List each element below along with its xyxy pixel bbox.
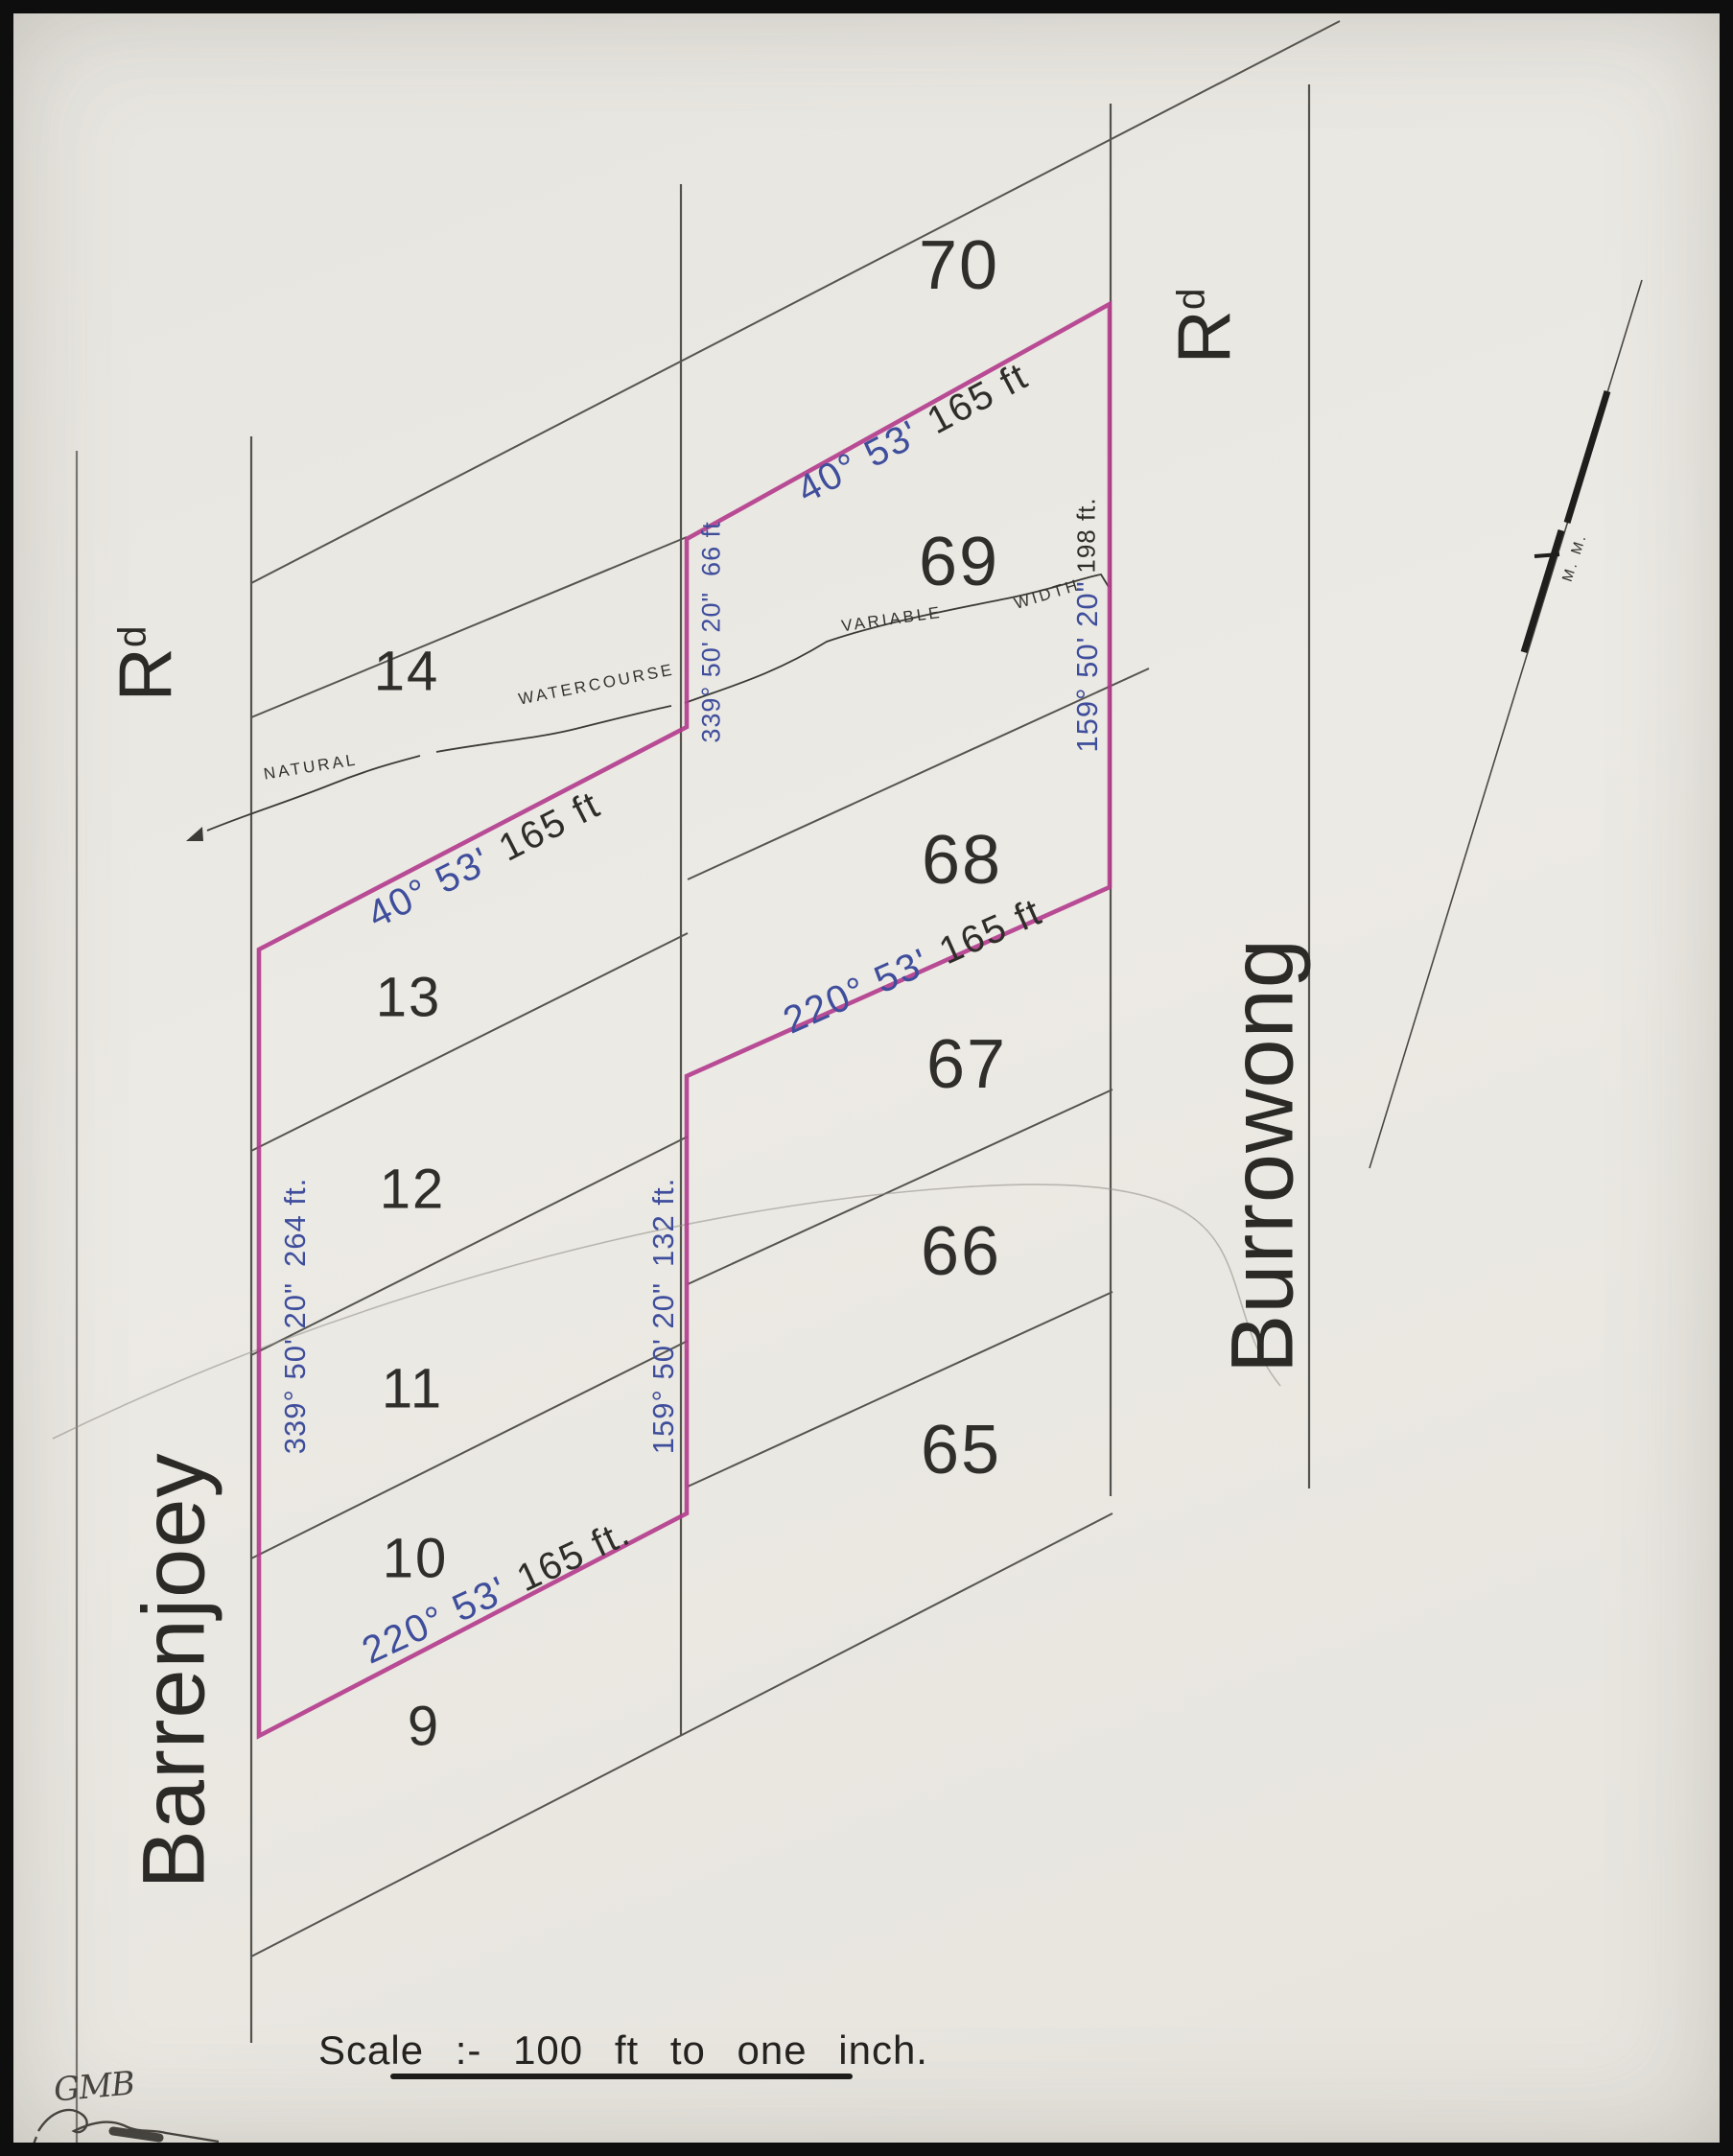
scale-underline	[390, 2074, 853, 2079]
bearing-value: 159° 50' 20"	[646, 1282, 681, 1454]
bearing-notch: 339° 50' 20" 66 ft	[697, 521, 727, 742]
lot-label-69: 69	[919, 523, 999, 601]
watercourse-arrowhead-icon	[186, 827, 203, 841]
road-abbr-burrowong: Rd	[1161, 289, 1249, 364]
road-name-barrenjoey: Barrenjoey	[125, 1453, 225, 1889]
bearing-value: 339° 50' 20"	[278, 1282, 313, 1454]
road-abbr-sup: d	[110, 626, 154, 648]
distance-value: 66 ft	[697, 521, 727, 576]
lot-label-67: 67	[926, 1025, 1007, 1104]
lot-label-65: 65	[921, 1411, 1001, 1489]
meridian-bar-lower	[1524, 530, 1561, 652]
lot-label-12: 12	[380, 1158, 446, 1222]
bearing-value: 159° 50' 20"	[1070, 580, 1105, 752]
lot-label-13: 13	[376, 966, 442, 1030]
scale-note: Scale :- 100 ft to one inch.	[318, 2027, 928, 2074]
division-line-65-66	[688, 1292, 1112, 1487]
north-arrow	[1370, 280, 1642, 1168]
bearing-left-frontage: 339° 50' 20" 264 ft.	[278, 1178, 313, 1454]
lot-label-10: 10	[383, 1527, 449, 1591]
bearing-right-frontage: 159° 50' 20"	[1070, 580, 1105, 752]
meridian-tick	[1534, 554, 1559, 556]
watercourse-width-value: 198 ft.	[1072, 497, 1102, 573]
distance-value: 264 ft.	[278, 1178, 313, 1267]
signature-scribble	[33, 2110, 219, 2152]
lot-label-70: 70	[919, 226, 999, 305]
roads-linework	[77, 84, 1309, 2144]
surveyor-initials: GMB	[52, 2064, 135, 2109]
bearing-value: 339° 50' 20"	[697, 592, 727, 743]
bearing-mid-rear: 159° 50' 20" 132 ft.	[646, 1178, 681, 1454]
lot-label-11: 11	[382, 1357, 443, 1421]
road-abbr-main: R	[1162, 310, 1247, 363]
road-abbr-main: R	[104, 647, 188, 701]
division-line-14-top	[251, 537, 687, 717]
distance-value: 132 ft.	[646, 1178, 681, 1267]
lot-label-9: 9	[408, 1695, 440, 1759]
watercourse-line	[186, 574, 1109, 841]
survey-plan-page: Barrenjoey Rd Burrowong Rd 14 13 12 11 1…	[0, 0, 1733, 2156]
lot-label-14: 14	[374, 640, 440, 704]
watercourse-segment-2	[436, 706, 671, 752]
plan-linework	[0, 0, 1733, 2156]
division-line-66-67	[688, 1090, 1112, 1284]
signature-flick	[33, 2137, 36, 2152]
lot-label-66: 66	[921, 1212, 1001, 1291]
division-line-11-12	[251, 1137, 688, 1355]
road-abbr-sup: d	[1169, 289, 1213, 311]
lot-label-68: 68	[922, 821, 1002, 900]
road-name-burrowong: Burrowong	[1213, 938, 1314, 1373]
road-abbr-barrenjoey: Rd	[103, 626, 190, 702]
meridian-bar-upper	[1567, 391, 1607, 523]
division-line-12-13	[251, 933, 688, 1151]
